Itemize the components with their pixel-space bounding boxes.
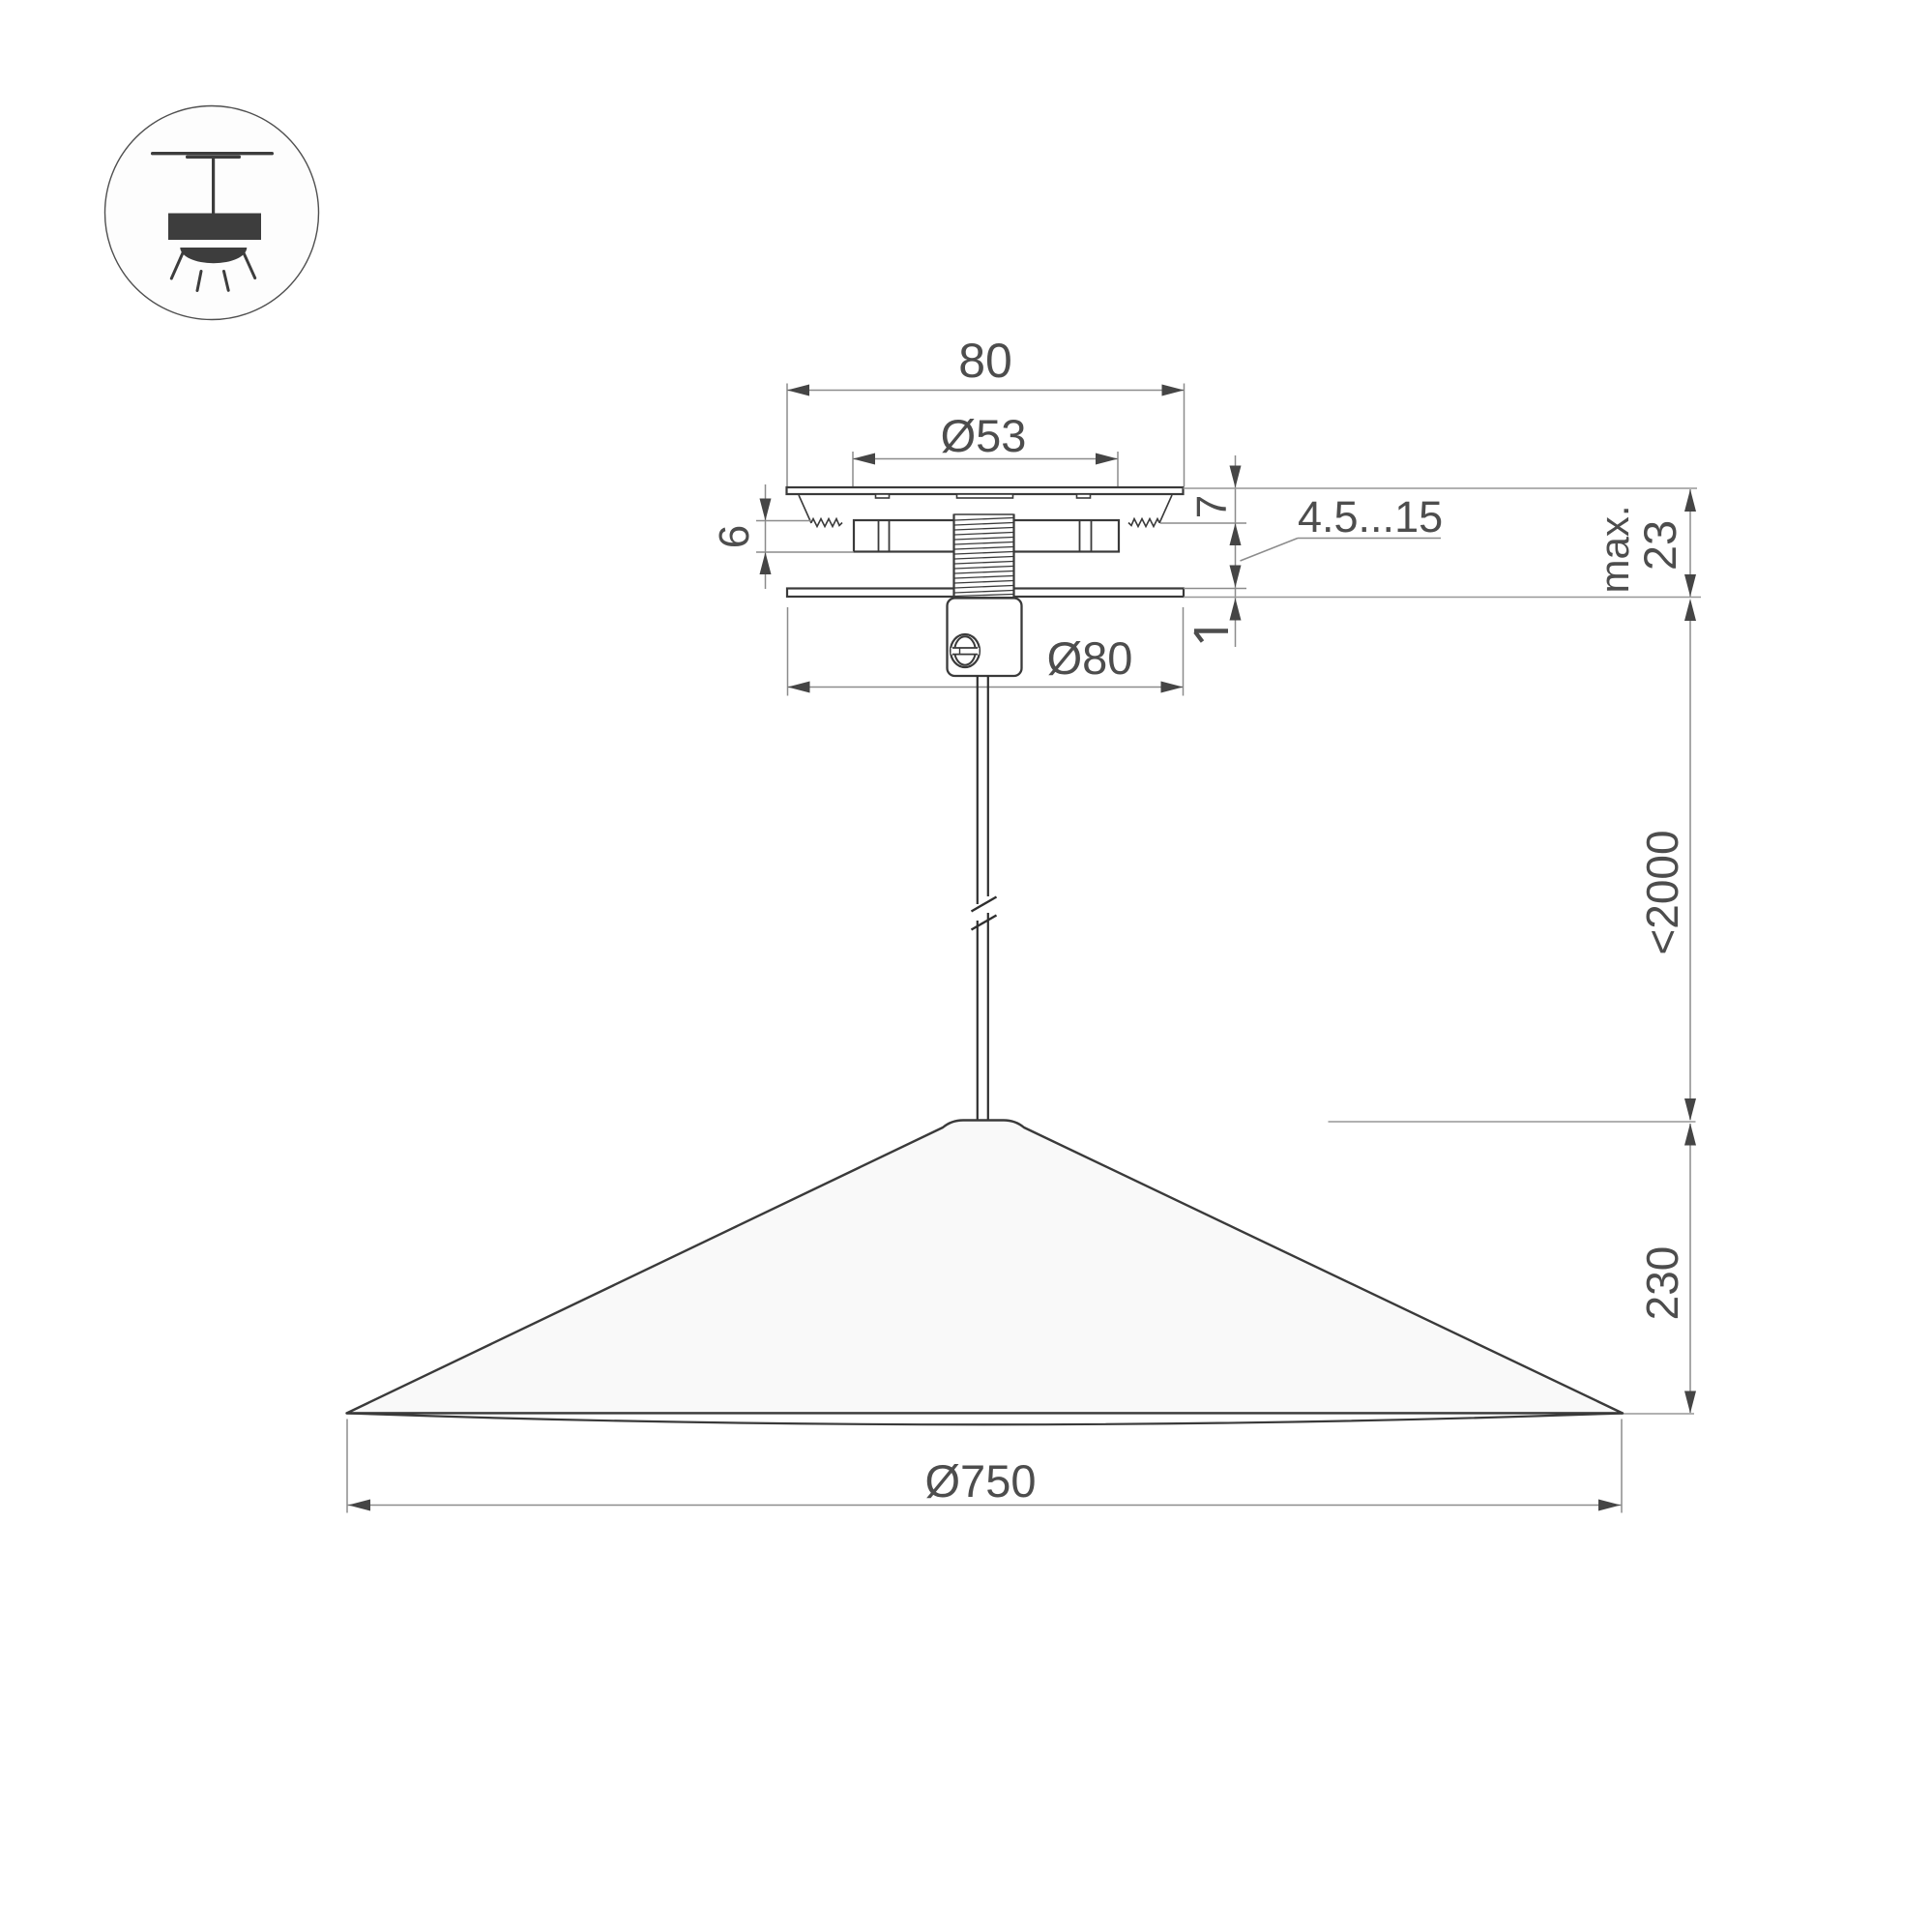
- svg-text:Ø53: Ø53: [941, 410, 1027, 461]
- svg-text:7: 7: [1188, 495, 1236, 518]
- svg-text:max.: max.: [1592, 505, 1637, 593]
- svg-text:230: 230: [1637, 1246, 1687, 1321]
- svg-text:<2000: <2000: [1637, 830, 1687, 954]
- svg-text:Ø80: Ø80: [1047, 632, 1133, 684]
- svg-text:23: 23: [1634, 520, 1685, 571]
- svg-text:6: 6: [711, 525, 758, 548]
- svg-text:4.5...15: 4.5...15: [1298, 492, 1443, 542]
- svg-text:Ø750: Ø750: [925, 1455, 1037, 1507]
- svg-text:80: 80: [958, 334, 1012, 388]
